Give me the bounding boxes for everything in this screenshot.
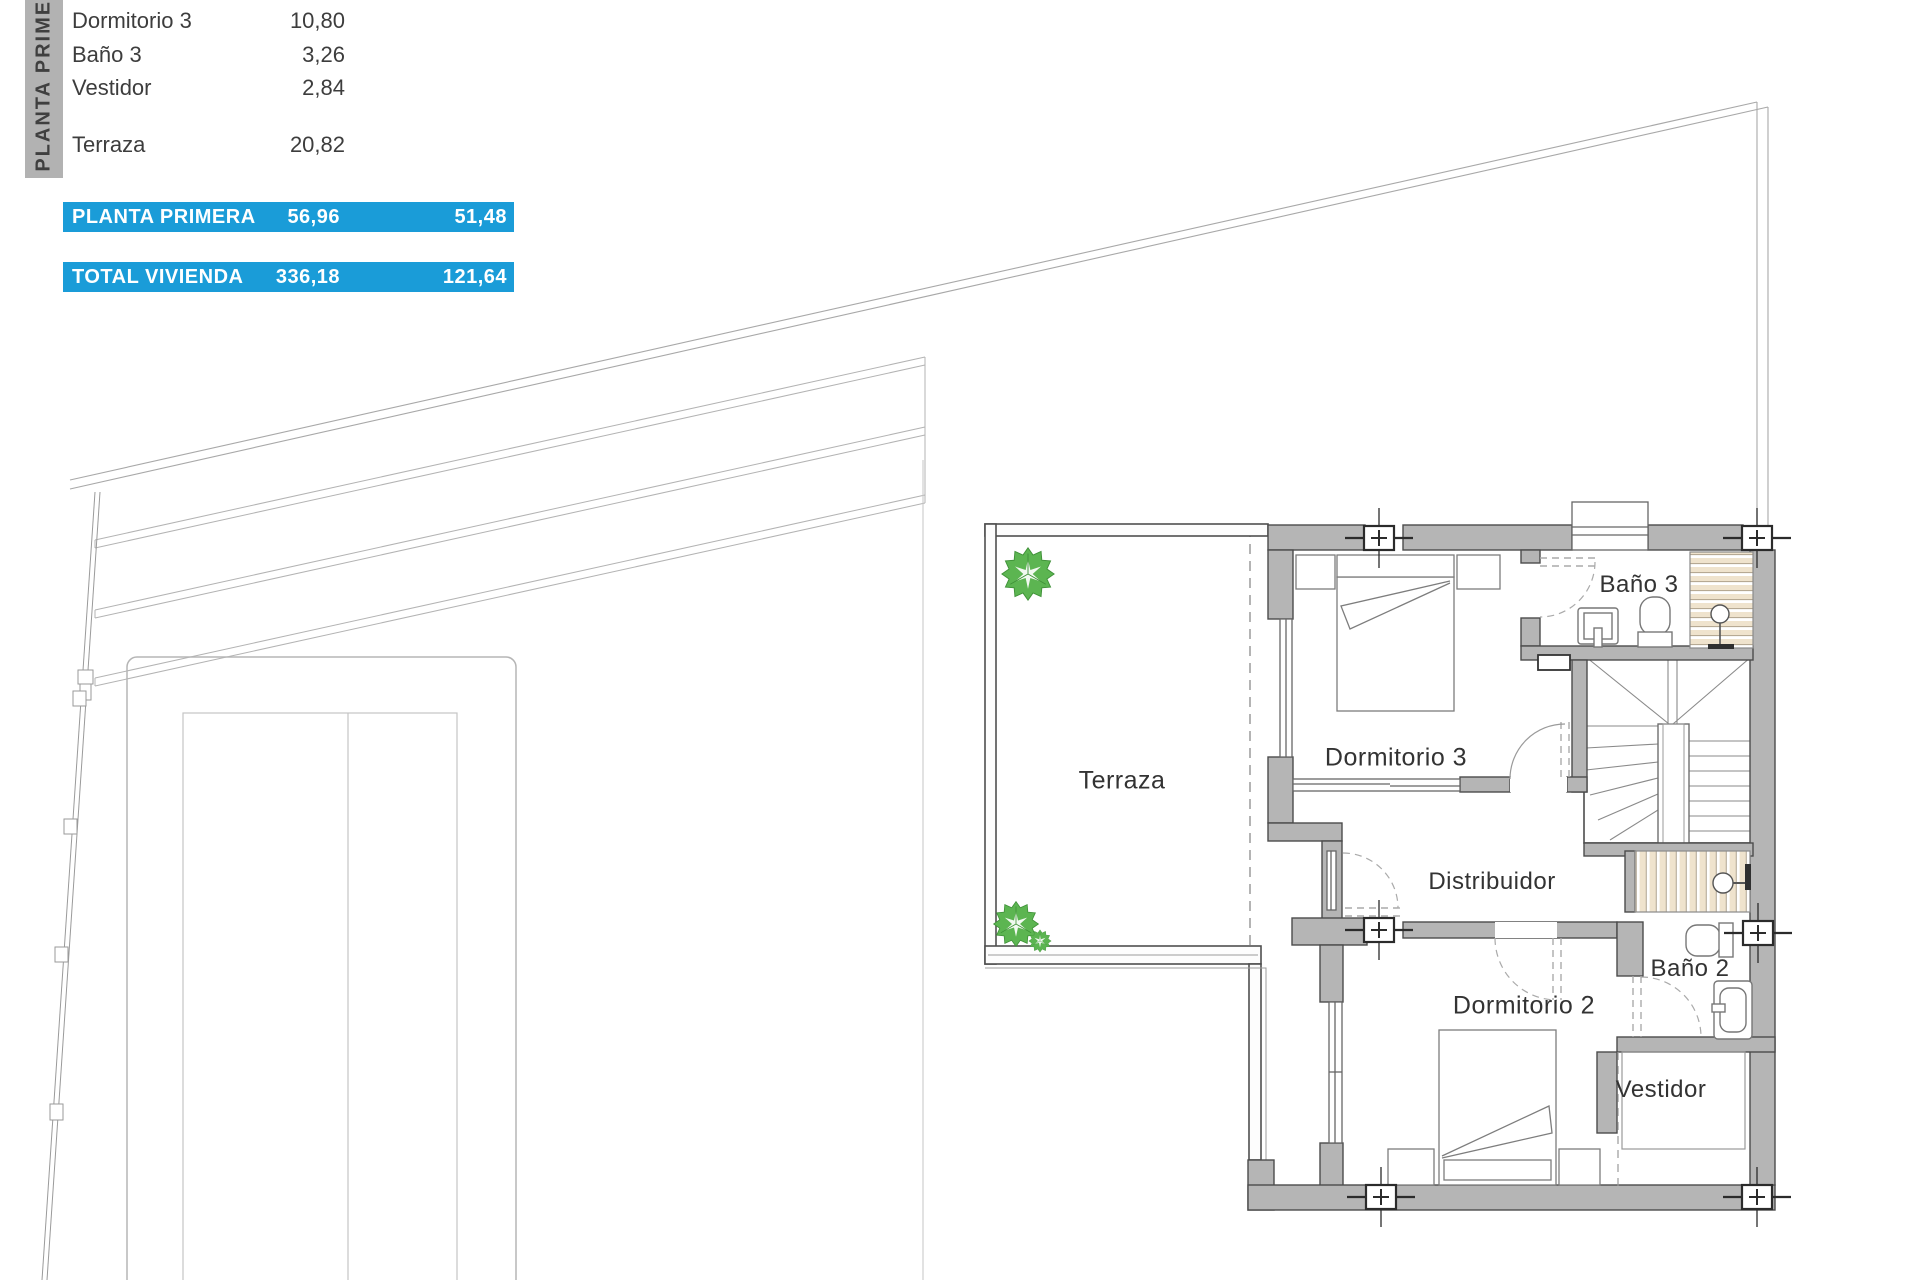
bed-headboard	[1444, 1160, 1551, 1180]
staircase	[1584, 655, 1753, 843]
table-row: Vestidor 2,84	[72, 75, 345, 101]
room-name: Baño 3	[72, 42, 142, 68]
room-label-dormitorio3: Dormitorio 3	[1325, 744, 1467, 773]
pergola-slat-lines	[95, 357, 925, 1280]
room-label-terraza: Terraza	[1079, 767, 1166, 796]
room-area: 10,80	[290, 8, 345, 34]
summary-name: PLANTA PRIMERA	[72, 202, 256, 232]
lower-roof-outline	[127, 657, 516, 1280]
summary-bar-total-vivienda: TOTAL VIVIENDA 336,18 121,64	[63, 262, 514, 292]
vestidor-closet	[1618, 1052, 1745, 1190]
room-name: Dormitorio 3	[72, 8, 192, 34]
column-marker-icon	[1723, 1167, 1791, 1227]
dormitorio3-bed	[1296, 555, 1500, 711]
bano3-window	[1572, 502, 1648, 550]
room-label-bano3: Baño 3	[1599, 571, 1678, 599]
summary-bar-planta-primera: PLANTA PRIMERA 56,96 51,48	[63, 202, 514, 232]
bano3-shower	[1690, 552, 1753, 649]
summary-value1: 56,96	[287, 202, 340, 232]
column-marker-icon	[1345, 900, 1413, 960]
room-label-distribuidor: Distribuidor	[1428, 868, 1555, 896]
table-row: Terraza 20,82	[72, 132, 345, 158]
table-row: Baño 3 3,26	[72, 42, 345, 68]
bano2-shower	[1635, 851, 1751, 912]
table-row: Dormitorio 3 10,80	[72, 8, 345, 34]
bano3-fixtures	[1578, 597, 1672, 647]
nightstand	[1388, 1149, 1434, 1185]
shower-head-icon	[1711, 605, 1729, 623]
room-area: 2,84	[302, 75, 345, 101]
summary-value2: 121,64	[443, 262, 507, 292]
room-label-dormitorio2: Dormitorio 2	[1453, 992, 1595, 1021]
service-shaft	[1538, 655, 1570, 670]
summary-name: TOTAL VIVIENDA	[72, 262, 243, 292]
room-name: Vestidor	[72, 75, 152, 101]
toilet-icon	[1640, 597, 1670, 635]
nightstand	[1296, 555, 1335, 589]
terraza-parapet	[985, 524, 1268, 1160]
room-name: Terraza	[72, 132, 145, 158]
dormitorio3-south-glazing	[1293, 779, 1460, 791]
shower-head-icon	[1713, 873, 1733, 893]
room-area: 3,26	[302, 42, 345, 68]
summary-value2: 51,48	[454, 202, 507, 232]
plant-icon	[1002, 548, 1054, 600]
dormitorio2-bed	[1388, 1030, 1600, 1185]
room-label-bano2: Baño 2	[1650, 955, 1729, 983]
summary-value1: 336,18	[276, 262, 340, 292]
nightstand	[1457, 555, 1500, 589]
floor-tab-label: PLANTA PRIMERA	[33, 0, 56, 172]
floor-tab: PLANTA PRIMERA	[25, 0, 63, 178]
room-area: 20,82	[290, 132, 345, 158]
nightstand	[1559, 1149, 1600, 1185]
toilet-icon	[1686, 925, 1720, 956]
bed-headboard	[1337, 555, 1454, 577]
site-boundary-lines	[70, 102, 1768, 525]
room-label-vestidor: Vestidor	[1616, 1076, 1707, 1104]
plot-fence	[42, 492, 100, 1280]
floorplan-sheet: Terraza Dormitorio 3 Baño 3 Distribuidor…	[0, 0, 1920, 1280]
